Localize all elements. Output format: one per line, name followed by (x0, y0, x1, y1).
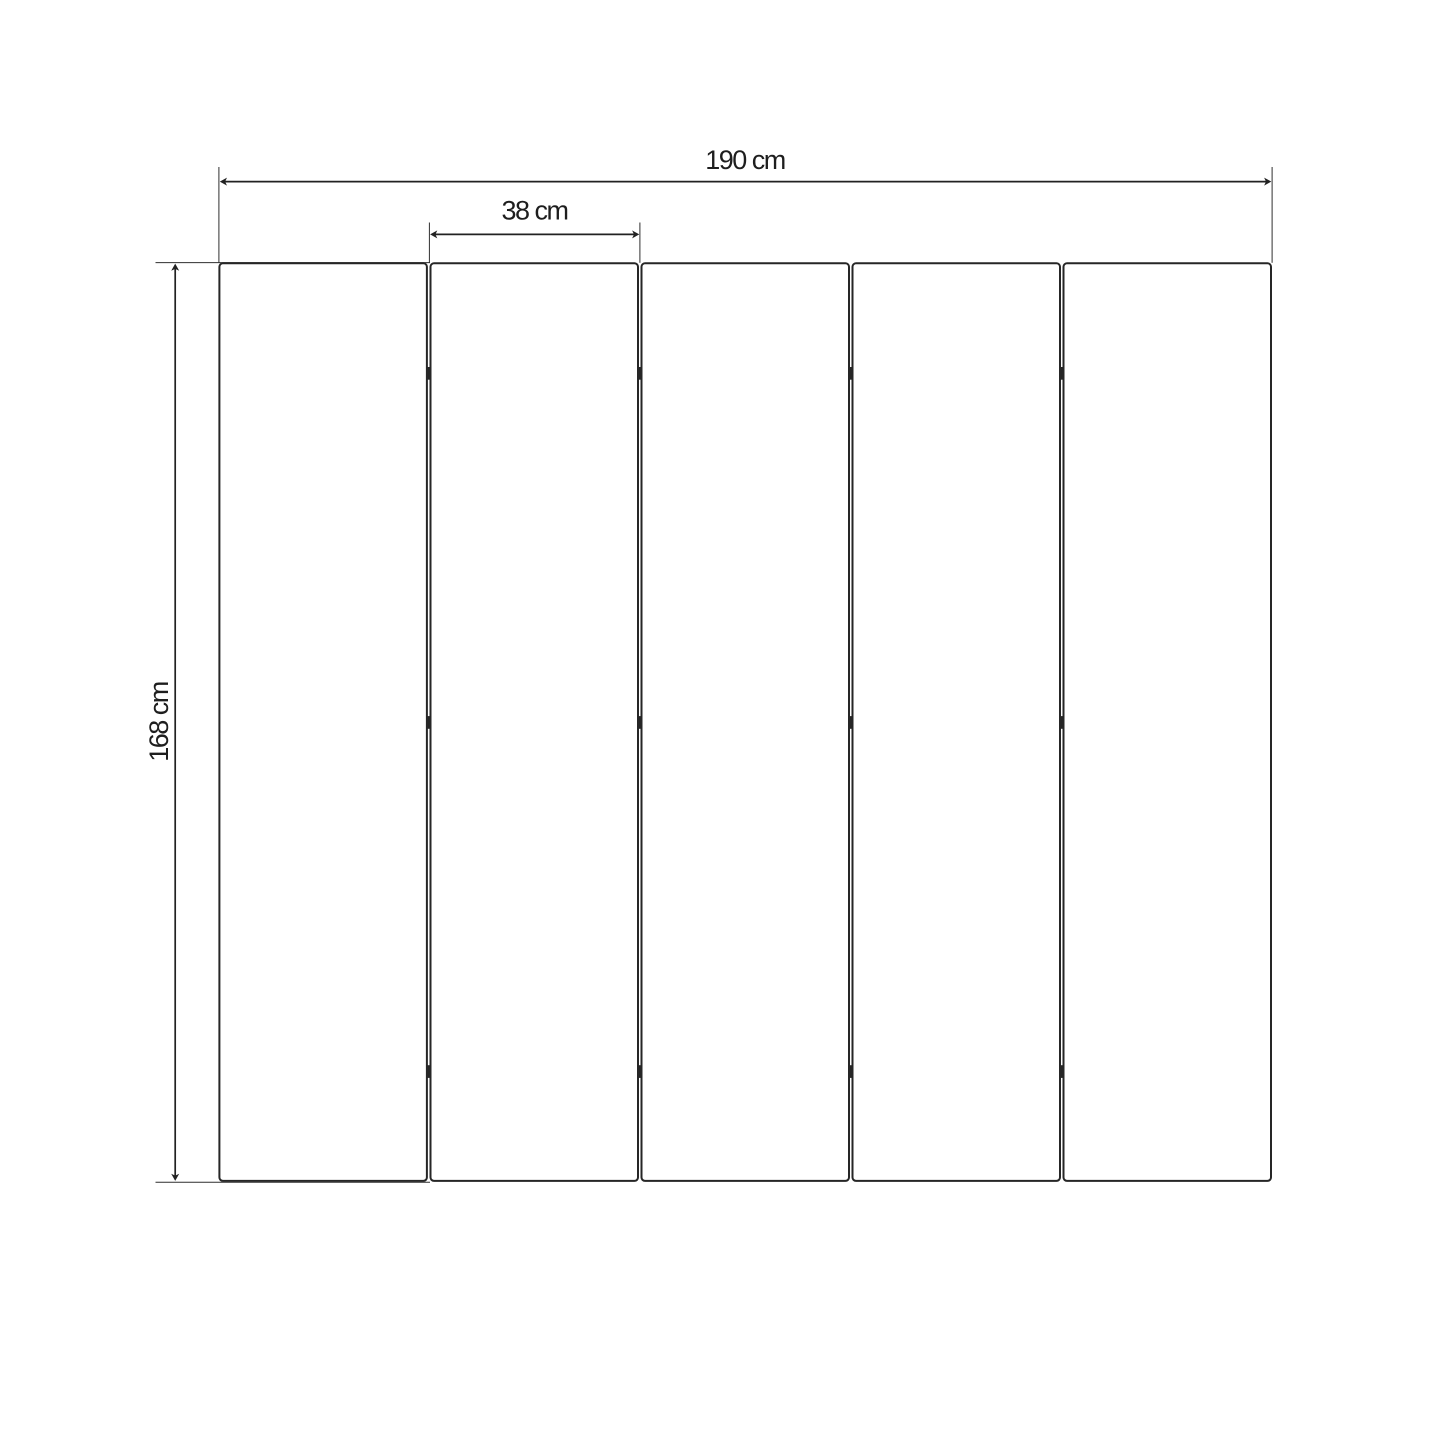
svg-text:168 cm: 168 cm (144, 682, 174, 762)
svg-text:190 cm: 190 cm (705, 145, 785, 175)
svg-text:38 cm: 38 cm (501, 196, 567, 226)
